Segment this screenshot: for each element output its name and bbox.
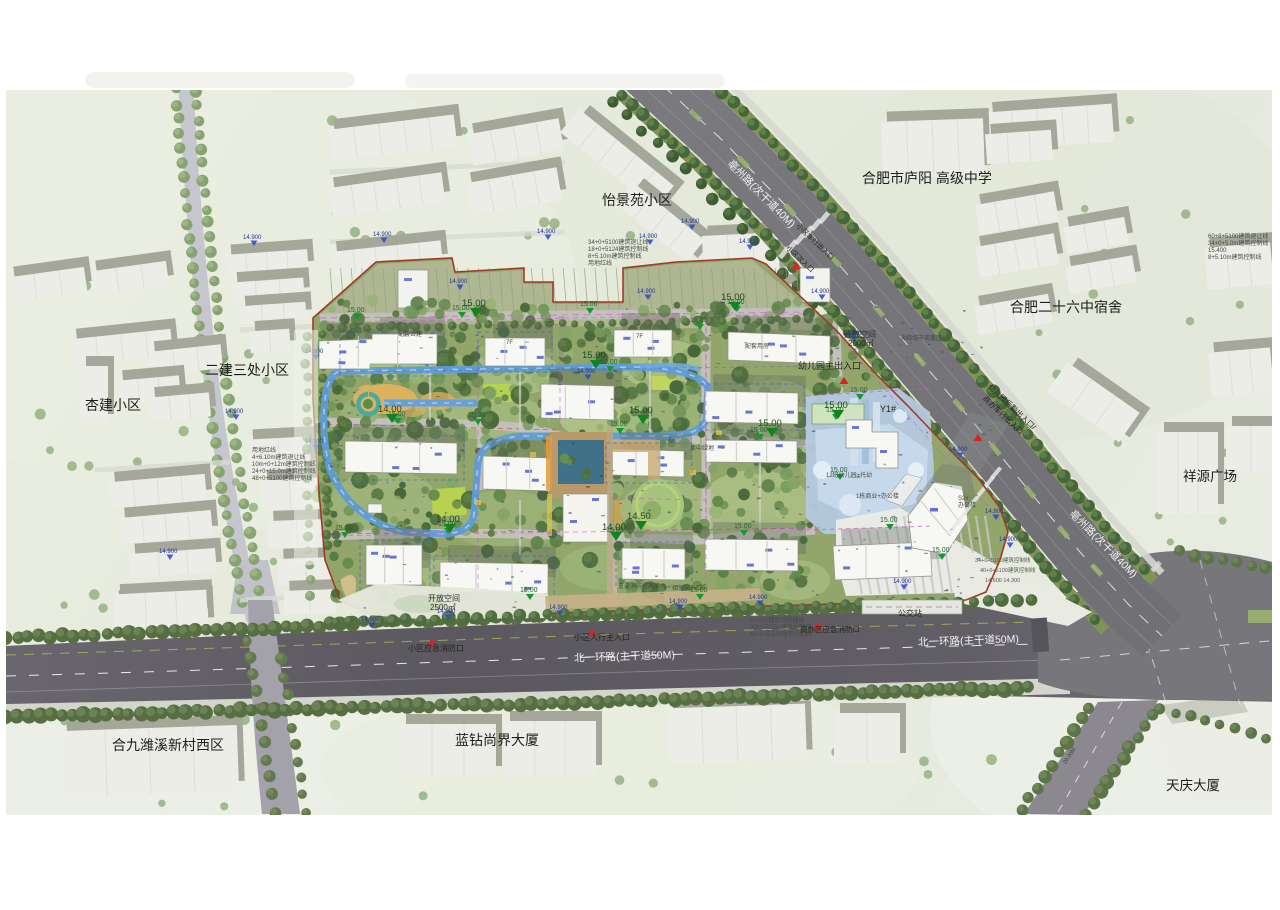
svg-text:海绵城市调蓄区: 海绵城市调蓄区	[900, 334, 942, 342]
svg-text:14.900: 14.900	[159, 549, 178, 555]
svg-text:14.900: 14.900	[637, 289, 656, 295]
svg-text:用地红线: 用地红线	[252, 446, 276, 454]
svg-text:杏建小区: 杏建小区	[85, 397, 141, 413]
svg-text:14.900: 14.900	[893, 579, 912, 585]
svg-text:15.00: 15.00	[347, 307, 365, 314]
svg-text:14.900: 14.900	[537, 229, 556, 235]
svg-text:12班幼儿园+托幼: 12班幼儿园+托幼	[826, 471, 872, 479]
svg-text:15.00: 15.00	[520, 587, 538, 594]
svg-text:7F: 7F	[506, 340, 513, 346]
svg-text:办公楼: 办公楼	[958, 501, 976, 509]
svg-text:祥源广场: 祥源广场	[1183, 469, 1237, 484]
svg-text:合肥市庐阳 高级中学: 合肥市庐阳 高级中学	[862, 170, 992, 186]
svg-text:14.900: 14.900	[361, 617, 380, 623]
svg-text:14.900: 14.900	[549, 605, 568, 611]
svg-text:48+0+5100建筑控制线: 48+0+5100建筑控制线	[252, 474, 312, 482]
svg-text:14.900: 14.900	[577, 369, 596, 375]
svg-text:15.400: 15.400	[1208, 248, 1227, 254]
svg-text:幼儿园主出入口: 幼儿园主出入口	[798, 360, 861, 371]
svg-text:Y1#: Y1#	[880, 404, 896, 414]
svg-text:小区应急消防口: 小区应急消防口	[408, 643, 464, 653]
svg-text:15.00: 15.00	[629, 405, 653, 416]
svg-text:14.900: 14.900	[949, 447, 968, 453]
svg-text:7F: 7F	[636, 334, 643, 340]
svg-text:商办区应急消防口: 商办区应急消防口	[800, 624, 860, 634]
svg-text:14.900: 14.900	[999, 537, 1018, 543]
svg-text:34+0+5100建筑控制线: 34+0+5100建筑控制线	[975, 556, 1031, 564]
svg-text:用地红线: 用地红线	[588, 259, 612, 267]
svg-text:15.00: 15.00	[468, 412, 486, 419]
svg-text:60+8+5100建筑退让线: 60+8+5100建筑退让线	[1208, 232, 1268, 240]
svg-text:14.00: 14.00	[378, 404, 402, 415]
svg-text:小区人行主入口: 小区人行主入口	[574, 632, 630, 642]
svg-text:15.00: 15.00	[721, 292, 745, 303]
svg-text:18+0+5124建筑控制线: 18+0+5124建筑控制线	[588, 245, 648, 253]
svg-text:蓝钻尚界大厦: 蓝钻尚界大厦	[455, 732, 539, 748]
svg-text:14.900: 14.900	[373, 232, 392, 238]
svg-text:配套用房: 配套用房	[745, 342, 769, 350]
svg-text:公交站: 公交站	[898, 608, 922, 618]
svg-text:14.00: 14.00	[436, 514, 460, 525]
svg-text:14.900: 14.900	[985, 509, 1004, 515]
svg-text:15.00: 15.00	[582, 350, 606, 361]
svg-text:二建三处小区: 二建三处小区	[205, 362, 289, 378]
svg-text:4+6.10m建筑退让线: 4+6.10m建筑退让线	[252, 453, 306, 461]
svg-text:2000㎡: 2000㎡	[848, 339, 874, 348]
svg-text:15.00: 15.00	[335, 525, 353, 532]
svg-text:合九潍溪新村西区: 合九潍溪新村西区	[112, 737, 224, 753]
svg-text:14.900: 14.900	[243, 235, 262, 241]
svg-text:15.00: 15.00	[690, 317, 708, 324]
svg-text:配套公建: 配套公建	[398, 330, 422, 338]
svg-text:14.900: 14.900	[669, 599, 688, 605]
svg-text:2500㎡: 2500㎡	[430, 603, 456, 612]
svg-text:天庆大厦: 天庆大厦	[1166, 778, 1220, 793]
svg-text:15.00: 15.00	[824, 400, 848, 411]
svg-text:40+0+5100建筑控制线: 40+0+5100建筑控制线	[980, 566, 1036, 574]
svg-text:15.00: 15.00	[462, 298, 486, 309]
svg-text:相邻出入口: 相邻出入口	[672, 584, 702, 592]
svg-text:集中绿地: 集中绿地	[690, 444, 714, 452]
svg-text:开放空间: 开放空间	[428, 593, 460, 603]
svg-text:15.00: 15.00	[610, 421, 628, 428]
svg-text:14.900: 14.900	[811, 289, 830, 295]
svg-text:14.900: 14.900	[739, 239, 758, 245]
svg-text:15.00: 15.00	[850, 387, 868, 394]
svg-text:重要消防登高面: 重要消防登高面	[618, 582, 660, 590]
svg-text:S2#: S2#	[958, 496, 969, 502]
svg-text:8+03m建筑消防通道: 8+03m建筑消防通道	[750, 616, 805, 624]
svg-text:15.00: 15.00	[758, 418, 782, 429]
svg-text:8+5.10m建筑控制线: 8+5.10m建筑控制线	[588, 252, 642, 260]
svg-text:15.00: 15.00	[880, 517, 898, 524]
svg-text:14.900: 14.900	[681, 219, 700, 225]
svg-text:10m+0+12m建筑控制线: 10m+0+12m建筑控制线	[252, 460, 316, 468]
svg-text:14.900: 14.900	[225, 409, 244, 415]
svg-text:14.900: 14.900	[749, 595, 768, 601]
svg-text:1栋商业+办公楼: 1栋商业+办公楼	[856, 492, 899, 500]
svg-text:14.00: 14.00	[602, 522, 626, 533]
svg-text:开放空间: 开放空间	[844, 329, 876, 339]
svg-text:15.00: 15.00	[734, 523, 752, 530]
svg-text:合肥二十六中宿舍: 合肥二十六中宿舍	[1010, 299, 1122, 315]
svg-text:15.00: 15.00	[932, 547, 950, 554]
svg-text:14.50: 14.50	[627, 511, 651, 522]
svg-text:14.900: 14.900	[449, 279, 468, 285]
svg-text:8+5.10m建筑控制线: 8+5.10m建筑控制线	[1208, 253, 1262, 261]
svg-text:34+0+5.0m建筑控制线: 34+0+5.0m建筑控制线	[1208, 239, 1268, 247]
svg-text:34+0+5100建筑退让线: 34+0+5100建筑退让线	[588, 238, 648, 246]
svg-text:24+0+15.0m建筑控制线: 24+0+15.0m建筑控制线	[252, 467, 316, 475]
svg-text:怡景苑小区: 怡景苑小区	[602, 192, 672, 208]
svg-text:15.00: 15.00	[580, 301, 598, 308]
